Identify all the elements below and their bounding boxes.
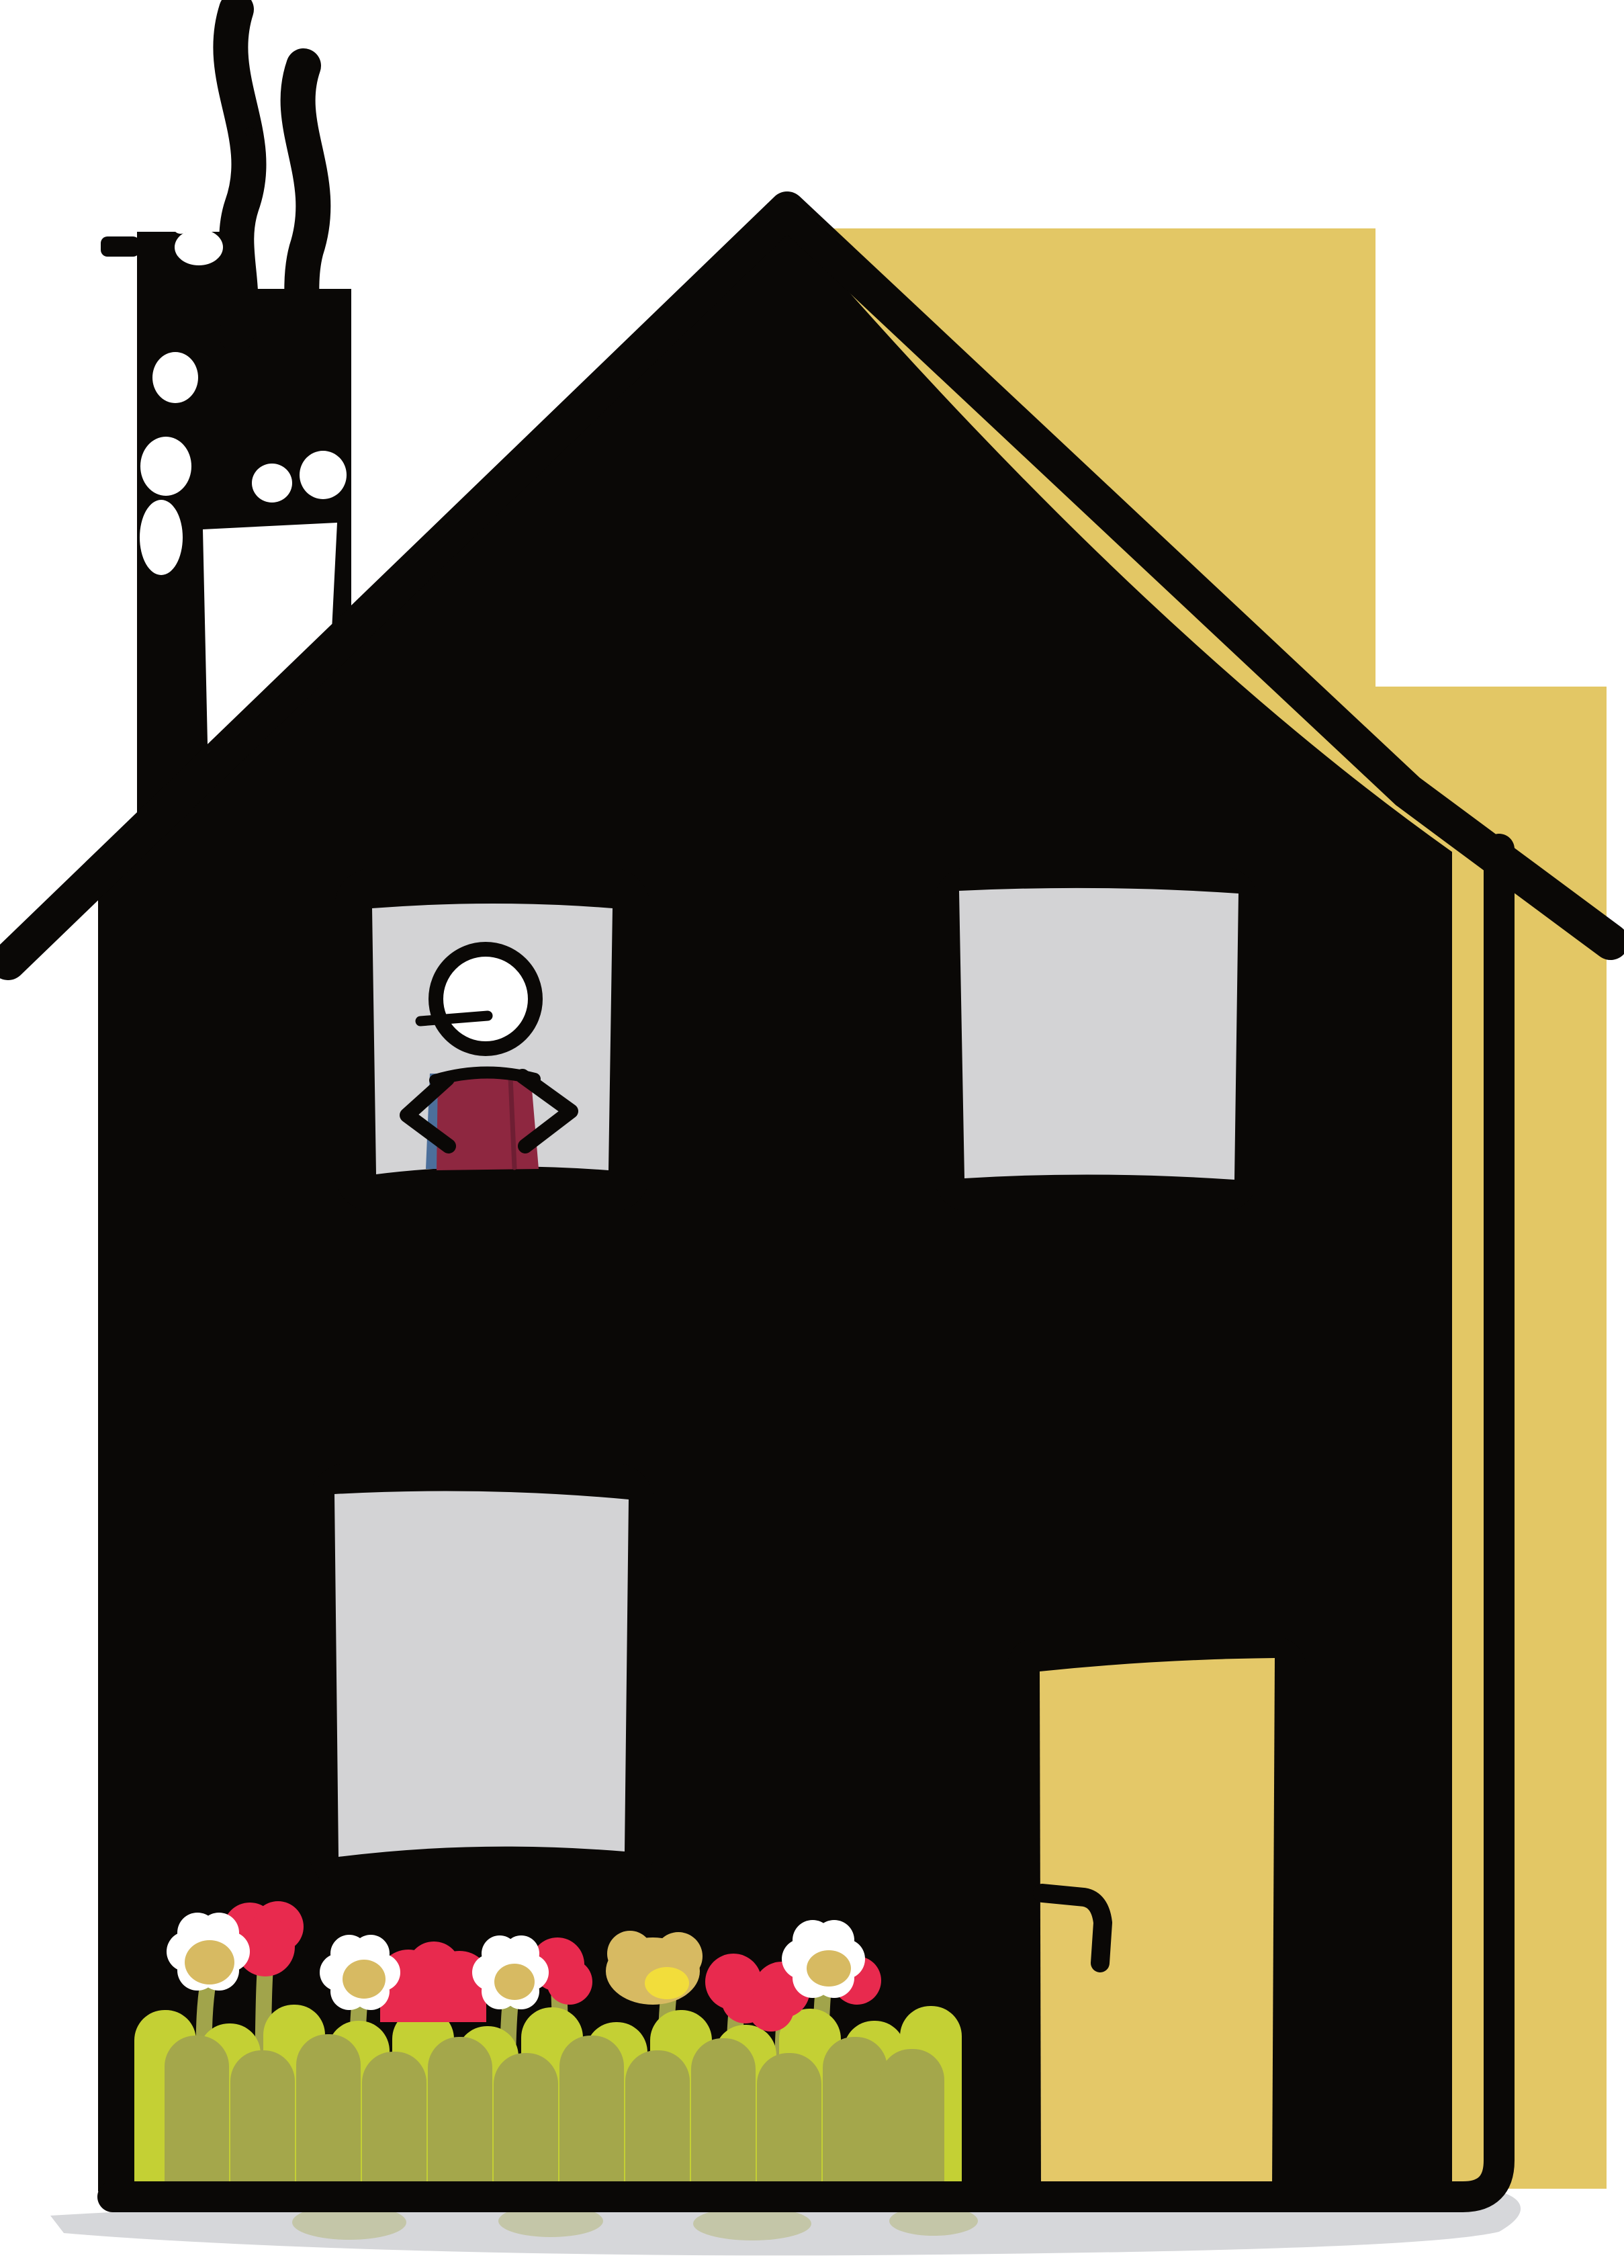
daisy-center <box>807 1950 851 1987</box>
house-illustration <box>0 0 1624 2268</box>
window-lower-left <box>309 1463 654 1890</box>
chimney-dot <box>252 464 292 503</box>
person-mouth <box>420 1016 488 1021</box>
chimney-dot <box>140 437 191 496</box>
daisy <box>472 1935 549 2009</box>
chimney-dot <box>175 229 223 265</box>
red-flower <box>748 1986 794 2032</box>
door <box>1007 1638 1306 2209</box>
window-pane <box>959 888 1238 1180</box>
red-flower <box>380 1980 486 2022</box>
person-head <box>436 949 535 1049</box>
smoke-speck <box>257 149 265 157</box>
smoke-trail-right <box>294 66 313 572</box>
chimney-dot <box>140 500 183 575</box>
golden-center <box>645 1967 689 1999</box>
illustration-canvas <box>0 0 1624 2268</box>
smoke-speck <box>245 127 255 136</box>
window-person <box>334 868 650 1212</box>
chimney-dot <box>152 352 198 403</box>
chimney-dot <box>300 451 347 499</box>
window-pane <box>334 1491 629 1858</box>
smoke-trail-left <box>230 9 249 335</box>
daisy-center <box>343 1960 386 1999</box>
window-upper-right <box>934 867 1259 1212</box>
door-panel <box>1040 1658 1275 2189</box>
chimney-ledge <box>101 236 140 257</box>
red-flower <box>547 1959 592 2005</box>
chimney-dot <box>173 218 189 234</box>
daisy-center <box>185 1940 234 1984</box>
golden-petals <box>607 1931 653 1976</box>
daisy-center <box>494 1964 535 2000</box>
